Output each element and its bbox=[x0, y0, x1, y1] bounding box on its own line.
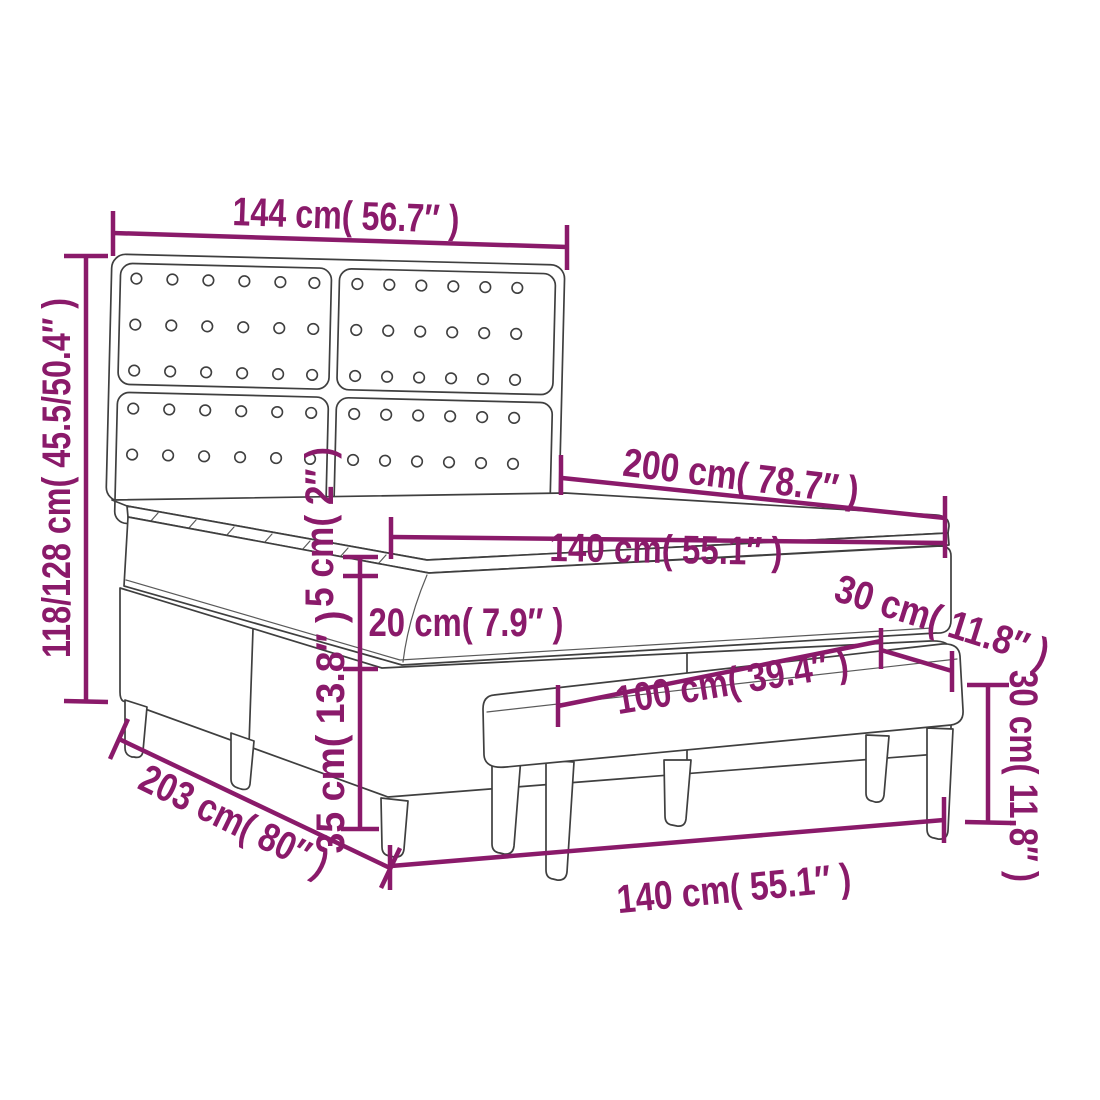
bench-leg-left-2 bbox=[546, 760, 574, 880]
mattress-thickness-label: 20 cm( 7.9″ ) bbox=[369, 601, 564, 645]
bed-height-label: 118/128 cm( 45.5/50.4″ ) bbox=[35, 298, 79, 658]
diagram-canvas: 144 cm( 56.7″ ) 118/128 cm( 45.5/50.4″ )… bbox=[0, 0, 1100, 1100]
bed-dimension-diagram: 144 cm( 56.7″ ) 118/128 cm( 45.5/50.4″ )… bbox=[0, 0, 1100, 1100]
bed-width-label: 140 cm( 55.1″ ) bbox=[615, 856, 853, 922]
headboard-width-label: 144 cm( 56.7″ ) bbox=[232, 190, 460, 242]
bench-leg-right-front bbox=[866, 735, 889, 802]
topper-thickness-label: 5 cm( 2″ ) bbox=[298, 447, 342, 607]
bench-leg-middle bbox=[664, 760, 691, 826]
base-height-label: 35 cm( 13.8″ ) bbox=[309, 611, 353, 854]
bench-leg-front-left bbox=[492, 755, 521, 854]
headboard-panel-top-left bbox=[118, 263, 332, 389]
mattress-width-label: 140 cm( 55.1″ ) bbox=[549, 526, 783, 574]
base-leg-3 bbox=[381, 798, 408, 857]
bench-height-label: 30 cm( 11.8″ ) bbox=[1001, 670, 1045, 882]
base-leg-2 bbox=[231, 733, 254, 789]
